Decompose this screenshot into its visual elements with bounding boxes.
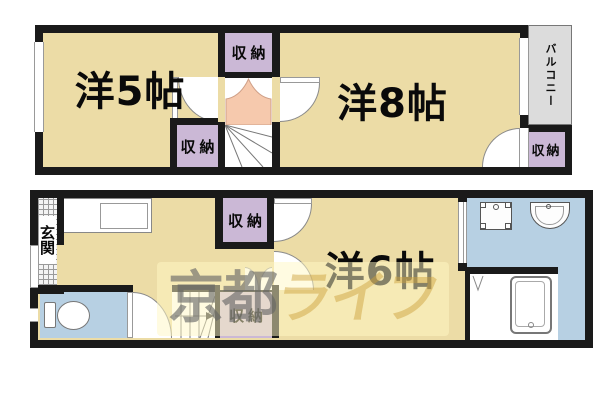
toilet-icon	[57, 301, 90, 330]
watermark-text-kyoto: 京都	[168, 271, 276, 327]
kitchen-sink-icon	[100, 203, 148, 229]
wall	[218, 122, 225, 167]
wall	[30, 340, 593, 348]
bathtub-drain	[528, 322, 534, 328]
storage-label: 収納	[227, 42, 269, 63]
sink-faucet	[546, 204, 551, 209]
storage-room: 収納	[223, 198, 267, 242]
wall	[520, 167, 572, 175]
window	[30, 308, 38, 322]
wall	[35, 25, 528, 33]
storage-label: 収納	[224, 210, 266, 231]
stair-hall	[225, 78, 272, 125]
wall	[35, 167, 528, 175]
balcony-area: バルコニー	[528, 25, 572, 125]
wall	[585, 190, 593, 348]
toilet-tank-icon	[44, 302, 56, 328]
window	[519, 38, 529, 115]
washer-corner	[480, 202, 486, 208]
wall	[272, 122, 280, 167]
balcony-label: バルコニー	[529, 26, 571, 124]
washing-machine-icon	[480, 202, 512, 230]
washer-corner	[505, 223, 511, 229]
kitchen-counter	[57, 198, 152, 233]
watermark-text-life: ライフ	[271, 271, 443, 327]
bathroom	[465, 267, 558, 340]
room-5-label: 洋5帖	[50, 65, 210, 110]
stairs-icon	[225, 125, 272, 167]
storage-label: 収納	[531, 140, 561, 159]
wall	[267, 198, 274, 242]
room-8-label: 洋8帖	[310, 77, 475, 123]
wall	[30, 322, 38, 348]
bathtub-inner	[515, 281, 545, 327]
entrance-label: 玄関	[39, 216, 56, 264]
storage-room: 収納	[177, 125, 218, 167]
stair-landing-icon	[225, 78, 272, 125]
upper-floor-plan: バルコニー 収納	[35, 25, 572, 175]
door-opening	[519, 128, 529, 167]
wall	[225, 72, 272, 78]
window	[34, 42, 44, 132]
bathroom-door-mark	[472, 275, 486, 293]
sliding-door-line	[463, 202, 464, 263]
wall	[215, 242, 274, 249]
wall	[57, 198, 64, 245]
storage-label: 収納	[177, 136, 219, 157]
toilet-room	[40, 292, 127, 338]
washer-corner	[480, 223, 486, 229]
floor-plan-image: バルコニー 収納	[0, 0, 600, 400]
storage-room: 収納	[225, 33, 272, 72]
wall	[30, 190, 593, 198]
watermark: 京都ライフ	[157, 262, 449, 336]
sink-basin	[535, 206, 564, 225]
wall	[218, 25, 225, 77]
washer-dial	[493, 204, 499, 210]
washer-corner	[505, 202, 511, 208]
wall	[38, 285, 133, 292]
bathtub-icon	[510, 276, 552, 334]
storage-room: 収納	[528, 132, 565, 167]
wall	[30, 288, 38, 308]
wall	[272, 25, 280, 77]
wall	[170, 118, 177, 167]
stairs-upper	[225, 125, 272, 167]
wall	[170, 118, 218, 125]
